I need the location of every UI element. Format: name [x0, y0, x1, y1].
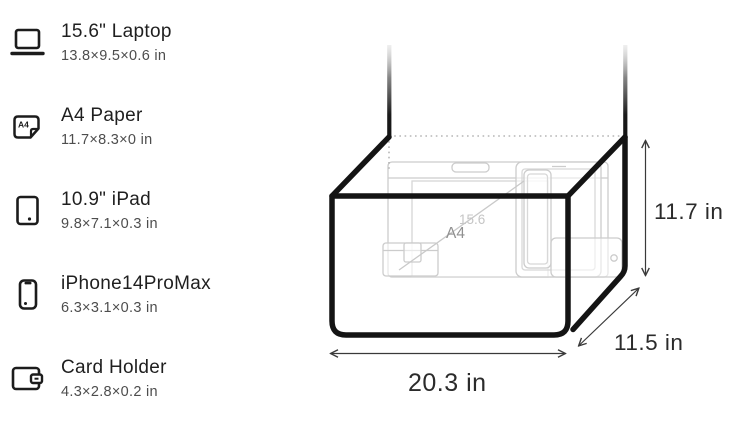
width-dimension-label: 20.3 in	[408, 369, 487, 397]
depth-dimension-label: 11.5 in	[614, 330, 683, 355]
bag-top-left-edge	[332, 137, 389, 196]
interior-card-holder-tab	[404, 243, 421, 262]
bag-strap-right	[623, 45, 627, 138]
bag-strap-left	[387, 45, 391, 138]
height-dimension-label: 11.7 in	[654, 199, 723, 224]
bag-diagram: 15.6 A4 11.7 in 11.5 in 20.3 in	[0, 0, 750, 426]
bag-dimension-infographic: 15.6" Laptop 13.8×9.5×0.6 in A4 A4 Paper…	[0, 0, 750, 426]
interior-a4-label: A4	[446, 225, 465, 242]
interior-laptop-latch	[452, 163, 489, 172]
